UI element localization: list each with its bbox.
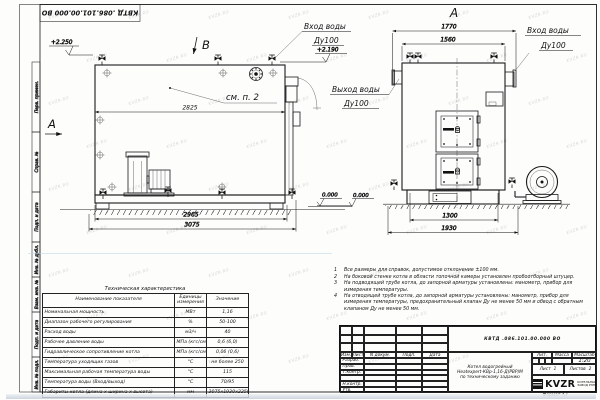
ground-hatch-front xyxy=(385,205,571,210)
svg-text:Вход воды: Вход воды xyxy=(527,26,569,35)
company-logo: KVZR КОТЕЛЬНЫЙЗАВОД РЭП xyxy=(532,375,597,393)
view-label-b: В xyxy=(202,38,210,52)
svg-text:Ду100: Ду100 xyxy=(313,36,339,45)
svg-text:3075: 3075 xyxy=(184,222,199,229)
fold-mark-line xyxy=(28,253,332,254)
svg-text:+2.190: +2.190 xyxy=(317,48,339,54)
notes-block: 1Все размеры для справок, допустимое отк… xyxy=(332,268,595,313)
svg-text:0.000: 0.000 xyxy=(322,193,338,199)
side-crosshairs xyxy=(96,69,278,192)
mirror-doc-number: КВТД .086.101.00.000 ВО xyxy=(40,5,140,22)
outlet-pipe xyxy=(392,70,402,85)
svg-text:Ду100: Ду100 xyxy=(540,41,566,50)
sheets-cell: Листов2 xyxy=(564,364,597,375)
frame-stamp-3: Инв. № дубл. xyxy=(34,245,40,274)
side-view: см. п. 2 2825 В А +2.250 +2.190 xyxy=(45,22,374,232)
note-item: 2На боковой стенке котла в области топоч… xyxy=(332,275,595,281)
level-top: +2.250 xyxy=(49,40,93,55)
table-row: Максимальная рабочая температура воды°С1… xyxy=(43,368,249,378)
table-row: Гидравлическое сопротивление котлаМПа (к… xyxy=(43,347,249,357)
drawing-sheet: KVZR.RUKVZR.RUKVZR.RUKVZR.RUKVZR.RUKVZR.… xyxy=(0,0,600,400)
drawing-title: Котел водогрейный Heatexpert-КВр-1,16-Д(… xyxy=(448,352,532,393)
note-item: 4На отводящей трубе котла, до запорной а… xyxy=(332,294,595,312)
table-row: Номинальная мощностьМВт1,16 xyxy=(43,307,249,317)
side-bottom-dims: 2965 3075 xyxy=(89,200,296,232)
lower-door xyxy=(436,154,480,189)
inlet-pipe xyxy=(505,70,516,87)
sig-row-label: Утв. xyxy=(340,387,364,393)
frame-stamp-6: Инв. № подл. xyxy=(34,360,40,390)
svg-text:Выход воды: Выход воды xyxy=(332,85,380,94)
burner-port xyxy=(250,68,263,81)
see-note-label: см. п. 2 xyxy=(226,93,259,103)
tech-table-header: Наименование показателя Единицы измерени… xyxy=(43,293,249,307)
frame-stamp-column: Перв. примен. Справ. № Подп. и дата Инв.… xyxy=(32,62,40,392)
front-view-label: А xyxy=(449,6,458,20)
title-block: КВТД .086.101.00.000 ВО Изм. Лист N доку… xyxy=(339,325,596,392)
note-item: 3На подводящей трубе котла, до запорной … xyxy=(332,281,595,293)
front-inlet-label: Вход воды Ду100 xyxy=(515,26,581,71)
frame-stamp-4: Взам. инв. № xyxy=(34,279,40,309)
fan-assembly xyxy=(124,152,174,196)
svg-text:1770: 1770 xyxy=(441,24,456,31)
svg-text:Вход воды: Вход воды xyxy=(304,22,346,31)
page-edge-shadow xyxy=(6,394,596,399)
frame-stamp-1: Справ. № xyxy=(34,151,40,172)
front-view: А 1770 1560 xyxy=(317,6,581,235)
frame-stamp-5: Подп. и дата xyxy=(34,320,40,350)
svg-text:КВТД .086.101.00.000 ВО: КВТД .086.101.00.000 ВО xyxy=(41,9,138,17)
frame-stamp-0: Перв. примен. xyxy=(34,81,40,113)
svg-text:0.000: 0.000 xyxy=(353,193,369,199)
kvzr-logo-icon xyxy=(532,379,543,389)
svg-text:Ду100: Ду100 xyxy=(343,99,369,108)
upper-door xyxy=(436,111,480,152)
side-dim-2825: 2825 xyxy=(182,105,197,112)
svg-text:1300: 1300 xyxy=(442,213,457,220)
frame-stamp-2: Подп. и дата xyxy=(34,202,40,232)
front-valves xyxy=(391,53,516,190)
tech-table-title: Техническая характеристика xyxy=(42,286,248,293)
sheet-cell: Лист1 xyxy=(532,364,564,375)
note-item: 1Все размеры для справок, допустимое отк… xyxy=(332,268,595,274)
side-inlet-label: Вход воды Ду100 xyxy=(273,22,351,60)
table-row: Температура воды (Вход/выход)°С70/95 xyxy=(43,378,249,388)
svg-text:1560: 1560 xyxy=(440,37,455,44)
svg-text:1930: 1930 xyxy=(441,225,456,232)
level-zero-side: 0.000 xyxy=(308,193,374,207)
table-row: Диапазон рабочего регулирования%50-100 xyxy=(43,317,249,327)
kvzr-logo-text: KVZR xyxy=(545,379,575,390)
table-row: Температура уходящих газов°Сне более 250 xyxy=(43,357,249,367)
front-outlet-label: Выход воды Ду100 xyxy=(330,79,399,109)
doc-number: КВТД .086.101.00.000 ВО xyxy=(448,326,597,352)
flue-outlet xyxy=(285,77,321,195)
ground-hatch-side xyxy=(90,210,293,215)
kvzr-logo-subtitle: КОТЕЛЬНЫЙЗАВОД РЭП xyxy=(577,381,597,388)
tech-characteristics: Техническая характеристика Наименование … xyxy=(42,286,248,399)
view-label-a-arrow: А xyxy=(47,117,56,131)
level-zero-front: 0.000 xyxy=(317,193,352,206)
svg-text:+2.250: +2.250 xyxy=(51,40,73,46)
sight-box xyxy=(486,92,503,106)
plinth xyxy=(407,190,499,204)
table-row: Расход водым3/ч40 xyxy=(43,327,249,337)
level-inlet: +2.190 xyxy=(280,48,347,63)
table-row: Рабочее давление водыМПа (кгс/см2)0,6 (6… xyxy=(43,337,249,347)
front-fan xyxy=(515,167,561,204)
